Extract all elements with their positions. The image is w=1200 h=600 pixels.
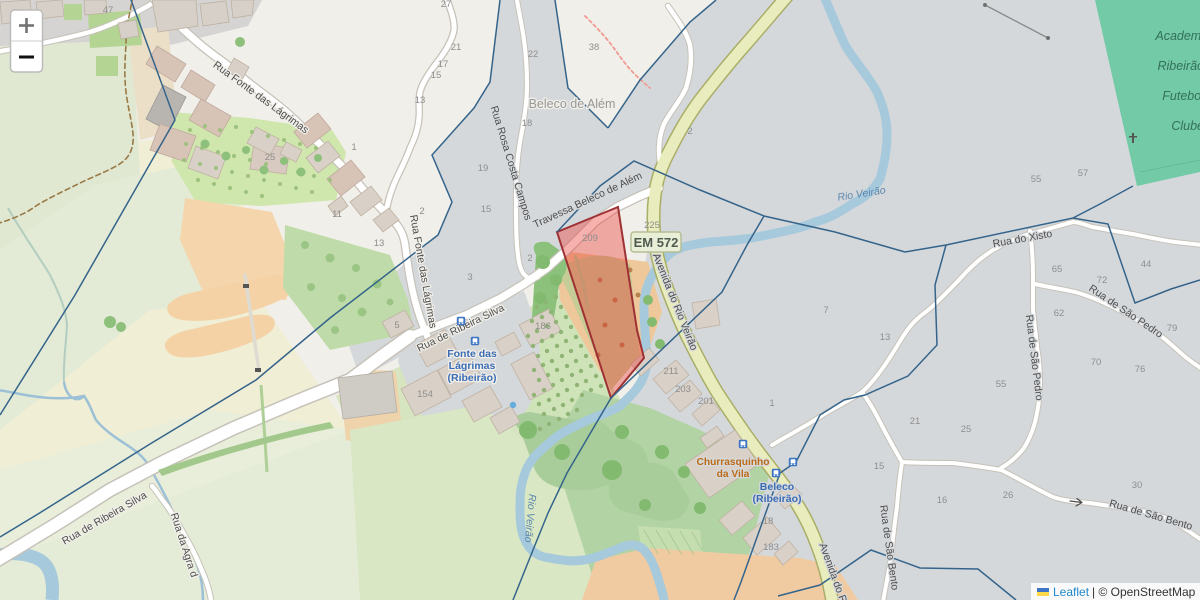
- svg-text:13: 13: [415, 95, 426, 106]
- svg-text:16: 16: [937, 495, 948, 506]
- svg-text:19: 19: [478, 163, 489, 174]
- svg-text:15: 15: [874, 461, 885, 472]
- svg-text:1: 1: [769, 398, 774, 409]
- svg-text:76: 76: [1135, 364, 1146, 375]
- svg-text:Futebol: Futebol: [1162, 89, 1200, 103]
- svg-text:Beleco de Além: Beleco de Além: [529, 97, 616, 111]
- svg-text:72: 72: [1097, 275, 1108, 286]
- svg-text:17: 17: [438, 59, 449, 70]
- svg-text:79: 79: [1167, 323, 1178, 334]
- svg-text:13: 13: [880, 332, 891, 343]
- svg-text:18: 18: [763, 516, 774, 527]
- svg-text:186: 186: [535, 321, 551, 332]
- svg-text:62: 62: [1054, 308, 1065, 319]
- svg-text:Churrasquinho: Churrasquinho: [696, 457, 769, 468]
- svg-text:7: 7: [823, 305, 828, 316]
- svg-text:30: 30: [1132, 480, 1143, 491]
- svg-text:201: 201: [698, 396, 714, 407]
- svg-text:25: 25: [265, 152, 276, 163]
- svg-text:47: 47: [103, 5, 114, 16]
- svg-text:211: 211: [663, 366, 678, 377]
- svg-text:57: 57: [1078, 168, 1089, 179]
- svg-text:15: 15: [481, 204, 492, 215]
- svg-text:(Ribeirão): (Ribeirão): [447, 372, 496, 384]
- svg-text:203: 203: [675, 384, 691, 395]
- svg-text:55: 55: [1031, 174, 1042, 185]
- svg-text:Leaflet: Leaflet: [1053, 585, 1090, 599]
- svg-text:da Vila: da Vila: [717, 469, 750, 480]
- svg-text:21: 21: [451, 42, 462, 53]
- svg-text:1: 1: [351, 142, 356, 153]
- svg-text:21: 21: [910, 416, 921, 427]
- svg-text:26: 26: [1003, 490, 1014, 501]
- svg-text:3: 3: [467, 272, 472, 283]
- svg-text:2: 2: [419, 206, 424, 217]
- svg-text:18: 18: [522, 118, 533, 129]
- svg-text:27: 27: [441, 0, 452, 10]
- svg-text:Fonte das: Fonte das: [447, 348, 497, 360]
- svg-text:11: 11: [332, 209, 342, 220]
- svg-text:65: 65: [1052, 264, 1063, 275]
- svg-text:70: 70: [1091, 357, 1102, 368]
- svg-text:Ribeirão: Ribeirão: [1157, 59, 1200, 73]
- svg-text:183: 183: [763, 542, 779, 553]
- svg-text:209: 209: [582, 233, 598, 244]
- svg-text:25: 25: [961, 424, 972, 435]
- svg-text:Lágrimas: Lágrimas: [449, 360, 496, 372]
- svg-text:13: 13: [374, 238, 385, 249]
- svg-text:225: 225: [644, 220, 660, 231]
- svg-text:44: 44: [1141, 259, 1152, 270]
- svg-text:5: 5: [394, 320, 399, 331]
- svg-text:EM 572: EM 572: [634, 235, 679, 250]
- svg-text:(Ribeirão): (Ribeirão): [752, 493, 801, 505]
- svg-text:38: 38: [589, 42, 600, 53]
- svg-text:| © OpenStreetMap: | © OpenStreetMap: [1092, 585, 1196, 599]
- svg-text:Beleco: Beleco: [760, 481, 794, 493]
- svg-text:Clube: Clube: [1171, 119, 1200, 133]
- svg-text:154: 154: [417, 389, 433, 400]
- svg-text:Academi: Academi: [1154, 29, 1200, 43]
- svg-text:2: 2: [687, 126, 692, 137]
- svg-text:2: 2: [527, 253, 532, 264]
- svg-text:22: 22: [528, 49, 539, 60]
- svg-text:55: 55: [996, 379, 1007, 390]
- svg-text:15: 15: [431, 70, 442, 81]
